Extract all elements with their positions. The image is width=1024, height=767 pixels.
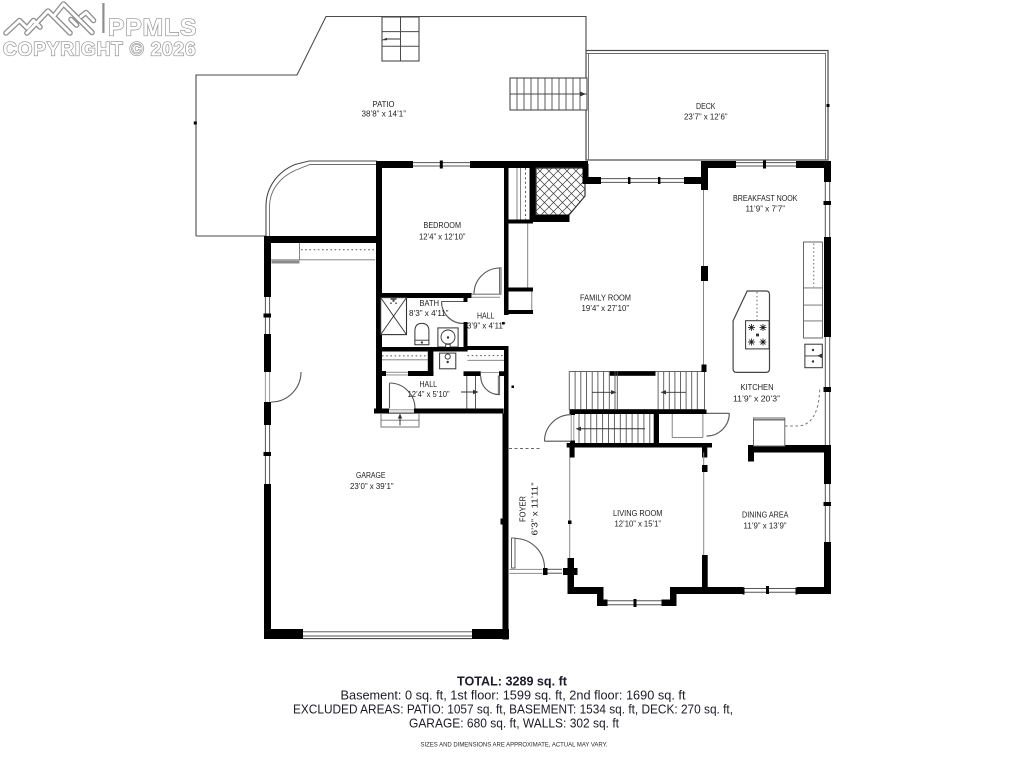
svg-text:BATH: BATH [420,298,440,308]
svg-text:SIZES AND DIMENSIONS ARE APPRO: SIZES AND DIMENSIONS ARE APPROXIMATE, AC… [421,742,608,749]
svg-text:HALL: HALL [477,311,495,321]
svg-text:12’4” x 12’10”: 12’4” x 12’10” [419,232,466,242]
svg-text:BEDROOM: BEDROOM [424,220,462,230]
svg-text:HALL: HALL [420,379,438,389]
svg-text:11’9” x 7’7”: 11’9” x 7’7” [746,204,786,214]
svg-text:FOYER: FOYER [518,496,528,522]
svg-text:8’3” x 4’11”: 8’3” x 4’11” [409,308,449,318]
svg-text:3’9” x 4’11”: 3’9” x 4’11” [467,321,506,331]
svg-text:DECK: DECK [696,101,716,111]
svg-text:DINING AREA: DINING AREA [742,510,789,520]
svg-text:Basement: 0 sq. ft, 1st floor:: Basement: 0 sq. ft, 1st floor: 1599 sq. … [341,689,686,703]
svg-text:BREAKFAST NOOK: BREAKFAST NOOK [733,193,798,203]
svg-text:11’9” x 20’3”: 11’9” x 20’3” [733,394,780,404]
svg-text:23’0” x 39’1”: 23’0” x 39’1” [350,481,394,491]
svg-text:KITCHEN: KITCHEN [741,382,774,392]
svg-text:LIVING ROOM: LIVING ROOM [613,508,663,518]
svg-text:GARAGE: GARAGE [356,470,386,480]
svg-text:COPYRIGHT © 2026: COPYRIGHT © 2026 [3,40,196,61]
svg-text:23’7” x 12’6”: 23’7” x 12’6” [684,112,728,122]
svg-text:PPMLS: PPMLS [108,15,197,42]
svg-text:11’9” x 13’9”: 11’9” x 13’9” [744,521,787,531]
svg-text:6’3” x 11’11”: 6’3” x 11’11” [530,482,540,535]
svg-text:GARAGE: 680 sq. ft, WALLS: 302: GARAGE: 680 sq. ft, WALLS: 302 sq. ft [409,717,619,731]
svg-text:12’4” x 5’10”: 12’4” x 5’10” [408,389,450,399]
svg-text:38’8” x 14’1”: 38’8” x 14’1” [362,109,407,119]
svg-text:12’10” x 15’1”: 12’10” x 15’1” [615,519,662,529]
svg-text:19’4” x 27’10”: 19’4” x 27’10” [582,303,630,313]
svg-text:EXCLUDED AREAS: PATIO: 1057 sq: EXCLUDED AREAS: PATIO: 1057 sq. ft, BASE… [293,703,733,717]
svg-text:TOTAL: 3289 sq. ft: TOTAL: 3289 sq. ft [457,675,568,689]
svg-text:FAMILY ROOM: FAMILY ROOM [580,293,631,303]
svg-text:PATIO: PATIO [373,99,395,109]
